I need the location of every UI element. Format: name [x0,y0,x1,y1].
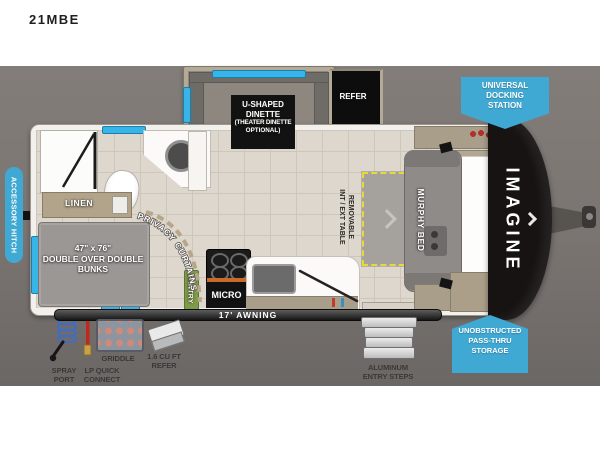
shower-door [63,134,94,187]
hitch-ball-icon [586,213,593,220]
brand-logo: IMAGINE [502,167,523,272]
entry-door-swing [300,271,357,301]
lp-quick-connect-icon [84,316,91,355]
spray-port-icon [50,318,76,362]
griddle-label: GRIDDLE [94,354,142,363]
floorplan-screenshot: 21MBE REFER LINEN 47" x 76" DOUBLE OVER … [0,0,600,450]
lp-quick-connect-label: LP QUICK CONNECT [77,366,127,385]
accessory-hitch-label: ACCESSORY HITCH [10,177,19,254]
griddle-icon [96,319,144,352]
mini-refer-label: 1.6 CU FT REFER [140,352,188,371]
awning-label: 17' AWNING [219,310,277,320]
entry-steps-label: ALUMINUM ENTRY STEPS [356,363,420,382]
entry-step [363,347,415,359]
